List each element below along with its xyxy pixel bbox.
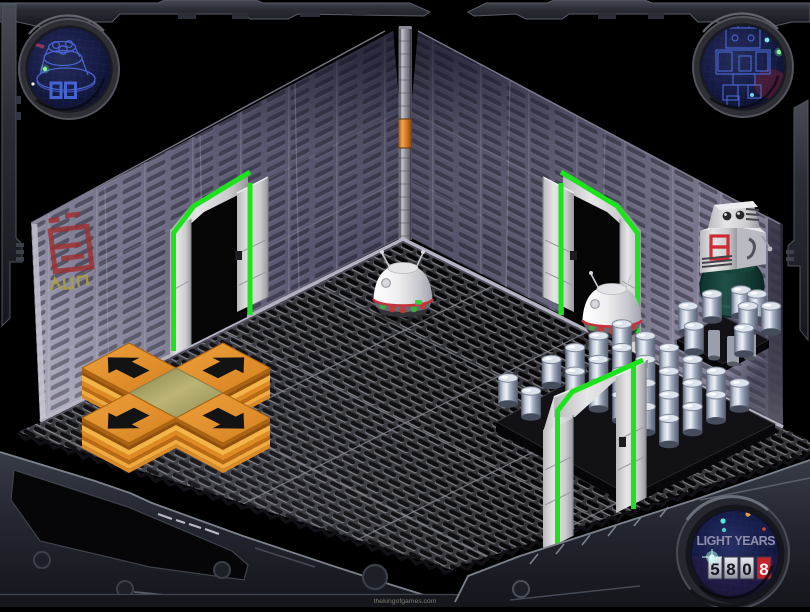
svg-text:0: 0 [742, 560, 751, 579]
svg-text:8: 8 [726, 560, 735, 579]
svg-text:thekingofgames.com: thekingofgames.com [374, 598, 437, 605]
svg-text:LIGHT YEARS: LIGHT YEARS [697, 534, 776, 548]
